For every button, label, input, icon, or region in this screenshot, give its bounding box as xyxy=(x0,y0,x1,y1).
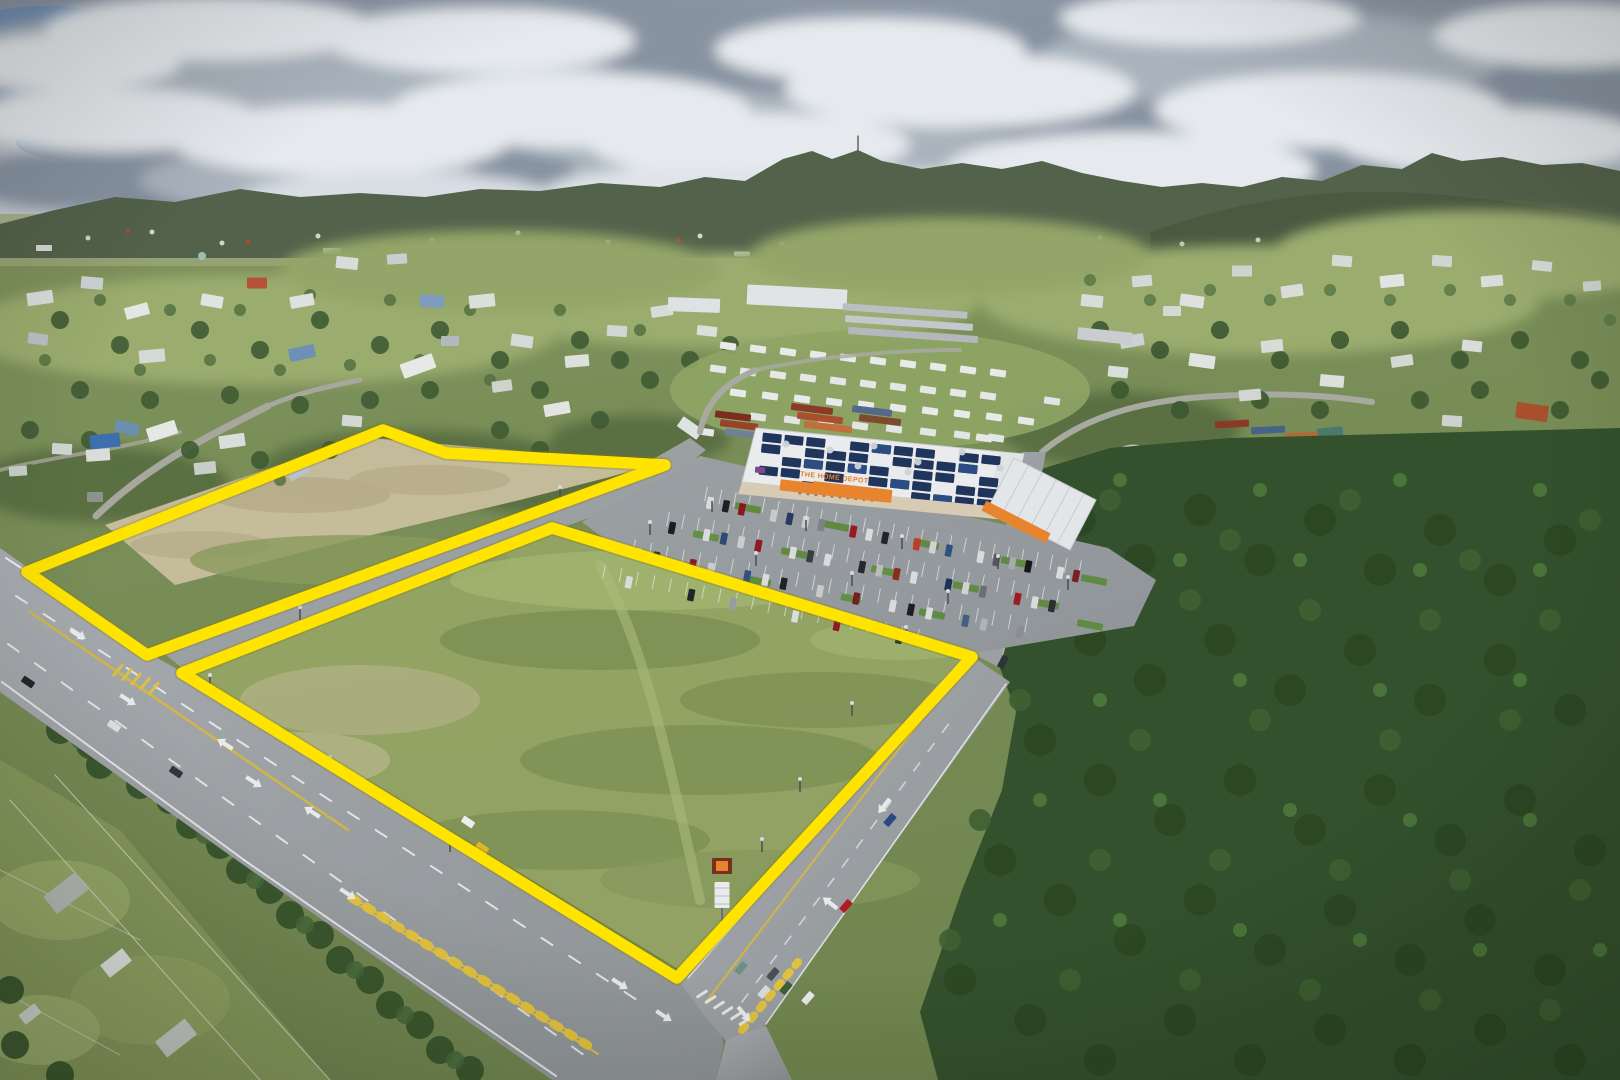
aerial-site-photo: THE HOME DEPOT xyxy=(0,0,1620,1080)
vignette xyxy=(0,0,1620,1080)
aerial-photo-canvas: THE HOME DEPOT xyxy=(0,0,1620,1080)
vignette xyxy=(0,0,1620,1080)
